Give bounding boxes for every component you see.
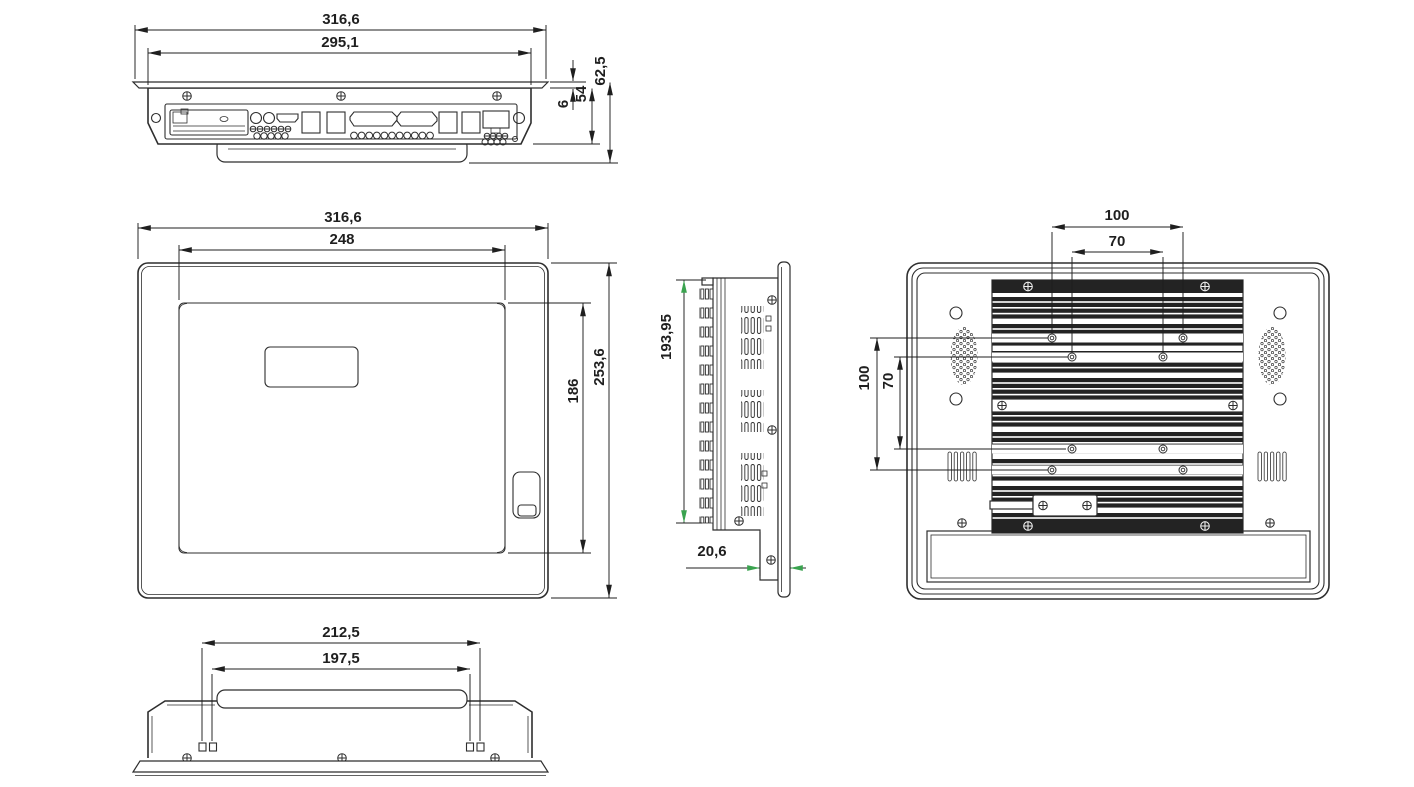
screw-icon: [1201, 522, 1210, 531]
front-bezel-outer: [138, 263, 548, 598]
screw-icon: [1024, 522, 1033, 531]
rear-view: 100 70 100 70: [856, 207, 1329, 599]
vent-slot-group: [741, 306, 764, 369]
vesa-hole: [1159, 353, 1167, 361]
dim-front-depth: 20,6: [697, 543, 726, 560]
screw-icon: [768, 296, 777, 305]
speaker-grille-left: [951, 327, 978, 385]
screw-icon: [767, 556, 776, 565]
dim-side-height: 193,95: [658, 314, 675, 360]
bracket-slot: [199, 743, 206, 751]
screw-icon: [1201, 282, 1210, 291]
bracket-slot: [210, 743, 217, 751]
bracket-slot: [477, 743, 484, 751]
screw-icon: [183, 92, 192, 101]
dim-top-body-width: 295,1: [321, 34, 359, 51]
side-view: 193,95 20,6: [658, 262, 806, 597]
bottom-view: 212,5 197,5: [133, 624, 548, 776]
screw-icon: [493, 92, 502, 101]
vesa-hole: [1048, 466, 1056, 474]
bottom-body-left: [148, 701, 217, 758]
dim-top-overall-width: 316,6: [322, 11, 360, 28]
vesa-hole: [1179, 334, 1187, 342]
vent-slot-group: [741, 390, 764, 432]
dim-bracket-outer: 212,5: [322, 624, 360, 641]
dim-display-height: 186: [565, 378, 582, 403]
dim-vesa-height-inner: 70: [880, 373, 897, 390]
technical-drawing-canvas: 316,6 295,1 6 54 62,5 316,6 248: [0, 0, 1414, 787]
heatsink-center-bar: [992, 399, 1243, 412]
dim-overall-depth: 62,5: [592, 56, 609, 85]
dim-vesa-height-outer: 100: [856, 365, 873, 390]
bracket-slot: [467, 743, 474, 751]
screw-icon: [1024, 282, 1033, 291]
bottom-view-dimensions: 212,5 197,5: [202, 624, 480, 741]
dim-body-depth: 54: [573, 85, 590, 102]
screw-icon: [337, 92, 346, 101]
dim-vesa-width-inner: 70: [1109, 233, 1126, 250]
mounting-bracket-strip: [927, 531, 1310, 582]
vent-slot-group: [741, 453, 764, 516]
screw-icon: [998, 401, 1007, 410]
panel-pc-drawing: 316,6 295,1 6 54 62,5 316,6 248: [0, 0, 1414, 787]
screw-icon: [1083, 501, 1092, 510]
vesa-hole: [1179, 466, 1187, 474]
vesa-hole: [1048, 334, 1056, 342]
screw-icon: [735, 517, 744, 526]
front-view: 316,6 248 253,6 186: [138, 209, 617, 598]
dim-flange-thickness: 6: [555, 100, 572, 108]
screw-icon: [1266, 519, 1275, 528]
rear-heatsink: [992, 280, 1243, 533]
dim-bracket-inner: 197,5: [322, 650, 360, 667]
heatsink-fins-side: [699, 284, 713, 523]
screw-icon: [958, 519, 967, 528]
vesa-hole: [1068, 353, 1076, 361]
front-flange-bottom: [133, 761, 548, 772]
heatsink-protrusion-bottom: [217, 690, 467, 708]
front-flange: [133, 82, 548, 88]
dim-vesa-width-outer: 100: [1104, 207, 1129, 224]
vesa-hole: [1159, 445, 1167, 453]
screw-icon: [1039, 501, 1048, 510]
dim-display-width: 248: [329, 231, 354, 248]
top-view: 316,6 295,1 6 54 62,5: [133, 11, 618, 163]
screw-icon: [768, 426, 777, 435]
front-panel-edge: [778, 262, 790, 597]
speaker-grille-right: [1259, 327, 1286, 385]
dim-front-overall-height: 253,6: [591, 348, 608, 386]
dim-front-overall-width: 316,6: [324, 209, 362, 226]
screw-icon: [1229, 401, 1238, 410]
vesa-hole: [1068, 445, 1076, 453]
